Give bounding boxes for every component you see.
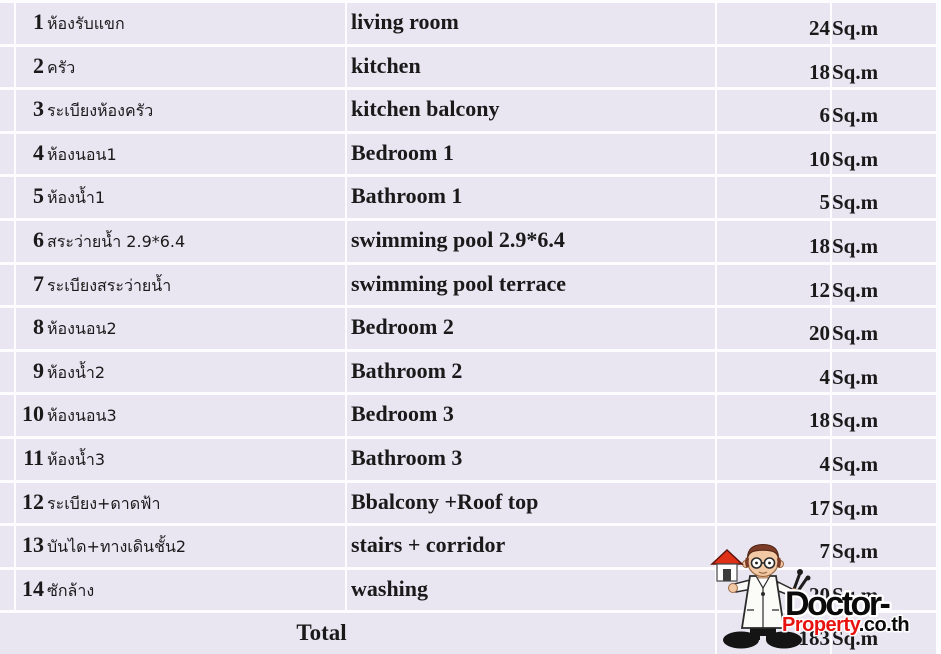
room-english-cell: Bbalcony +Roof top — [347, 483, 715, 524]
area-value: 18 — [809, 60, 830, 84]
area-unit-cell: Sq.m — [832, 221, 936, 262]
room-thai-cell: 13บันได+ทางเดินชั้น2 — [16, 526, 345, 567]
row-left-margin-cell — [0, 3, 14, 44]
room-english-cell: Bathroom 1 — [347, 177, 715, 218]
row-number: 12 — [16, 490, 44, 513]
area-value: 12 — [809, 278, 830, 302]
room-thai-cell: 9ห้องน้ำ2 — [16, 352, 345, 393]
room-name-thai: ระเบียงห้องครัว — [47, 101, 153, 120]
area-unit-label: Sq.m — [832, 16, 878, 40]
area-value-cell: 12 — [717, 265, 830, 306]
area-value: 24 — [809, 16, 830, 40]
area-value-cell: 6 — [717, 90, 830, 131]
room-english-cell: Bathroom 2 — [347, 352, 715, 393]
table-row: 10ห้องนอน3 Bedroom 3 18 Sq.m — [0, 395, 941, 436]
area-unit-label: Sq.m — [832, 147, 878, 171]
area-value-cell: 18 — [717, 221, 830, 262]
row-number: 8 — [16, 315, 44, 338]
room-name-english: living room — [351, 9, 459, 34]
area-unit-label: Sq.m — [832, 408, 878, 432]
total-row: Total 183 Sq.m — [0, 613, 941, 654]
area-unit-cell: Sq.m — [832, 395, 936, 436]
area-value: 17 — [809, 496, 830, 520]
area-value: 18 — [809, 408, 830, 432]
room-english-cell: stairs + corridor — [347, 526, 715, 567]
room-name-english: swimming pool terrace — [351, 271, 566, 296]
area-unit-label: Sq.m — [832, 539, 878, 563]
room-name-thai: ระเบียงสระว่ายน้ำ — [47, 276, 171, 295]
table-row: 11ห้องน้ำ3 Bathroom 3 4 Sq.m — [0, 439, 941, 480]
area-value-cell: 18 — [717, 47, 830, 88]
area-value-cell: 10 — [717, 134, 830, 175]
area-unit-label: Sq.m — [832, 365, 878, 389]
area-unit-label: Sq.m — [832, 321, 878, 345]
room-thai-cell: 6สระว่ายน้ำ 2.9*6.4 — [16, 221, 345, 262]
area-unit-cell: Sq.m — [832, 483, 936, 524]
row-left-margin-cell — [0, 221, 14, 262]
row-left-margin-cell — [0, 47, 14, 88]
row-left-margin-cell — [0, 134, 14, 175]
area-value: 10 — [809, 147, 830, 171]
total-area-value: 183 — [799, 626, 831, 650]
total-area-unit: Sq.m — [832, 626, 878, 650]
room-thai-cell: 7ระเบียงสระว่ายน้ำ — [16, 265, 345, 306]
area-unit-label: Sq.m — [832, 583, 878, 607]
room-area-sheet: 1ห้องรับแขก living room 24 Sq.m 2ครัว ki… — [0, 0, 941, 654]
area-unit-cell: Sq.m — [832, 526, 936, 567]
table-row: 13บันได+ทางเดินชั้น2 stairs + corridor 7… — [0, 526, 941, 567]
room-name-thai: บันได+ทางเดินชั้น2 — [47, 537, 186, 556]
room-name-thai: ห้องน้ำ2 — [47, 363, 105, 382]
row-number: 5 — [16, 184, 44, 207]
row-left-margin-cell — [0, 352, 14, 393]
table-row: 12ระเบียง+ดาดฟ้า Bbalcony +Roof top 17 S… — [0, 483, 941, 524]
row-number: 11 — [16, 446, 44, 469]
area-unit-cell: Sq.m — [832, 308, 936, 349]
total-label: Total — [296, 620, 346, 645]
room-name-thai: ห้องน้ำ1 — [47, 188, 105, 207]
room-name-english: Bedroom 2 — [351, 314, 454, 339]
row-number: 10 — [16, 402, 44, 425]
room-name-english: Bedroom 3 — [351, 401, 454, 426]
row-number: 6 — [16, 228, 44, 251]
row-number: 14 — [16, 577, 44, 600]
row-number: 9 — [16, 359, 44, 382]
area-value: 18 — [809, 234, 830, 258]
row-left-margin-cell — [0, 526, 14, 567]
room-name-thai: ครัว — [47, 58, 75, 77]
room-thai-cell: 5ห้องน้ำ1 — [16, 177, 345, 218]
area-unit-cell: Sq.m — [832, 90, 936, 131]
room-name-thai: ซักล้าง — [47, 581, 94, 600]
row-left-margin-cell — [0, 90, 14, 131]
area-value-cell: 4 — [717, 439, 830, 480]
room-name-english: Bbalcony +Roof top — [351, 489, 538, 514]
table-row: 7ระเบียงสระว่ายน้ำ swimming pool terrace… — [0, 265, 941, 306]
area-value: 4 — [820, 452, 831, 476]
room-thai-cell: 10ห้องนอน3 — [16, 395, 345, 436]
room-english-cell: Bathroom 3 — [347, 439, 715, 480]
area-unit-label: Sq.m — [832, 190, 878, 214]
area-value: 6 — [820, 103, 831, 127]
room-name-thai: สระว่ายน้ำ 2.9*6.4 — [47, 232, 185, 251]
area-value-cell: 7 — [717, 526, 830, 567]
area-unit-label: Sq.m — [832, 452, 878, 476]
room-english-cell: kitchen — [347, 47, 715, 88]
row-number: 7 — [16, 272, 44, 295]
area-unit-cell: Sq.m — [832, 352, 936, 393]
room-english-cell: swimming pool 2.9*6.4 — [347, 221, 715, 262]
room-thai-cell: 3ระเบียงห้องครัว — [16, 90, 345, 131]
room-english-cell: living room — [347, 3, 715, 44]
room-thai-cell: 2ครัว — [16, 47, 345, 88]
area-value-cell: 17 — [717, 483, 830, 524]
table-row: 8ห้องนอน2 Bedroom 2 20 Sq.m — [0, 308, 941, 349]
area-value-cell: 4 — [717, 352, 830, 393]
area-unit-cell: Sq.m — [832, 265, 936, 306]
table-row: 5ห้องน้ำ1 Bathroom 1 5 Sq.m — [0, 177, 941, 218]
area-value: 20 — [809, 321, 830, 345]
room-name-english: stairs + corridor — [351, 532, 505, 557]
room-english-cell: kitchen balcony — [347, 90, 715, 131]
row-left-margin-cell — [0, 570, 14, 611]
area-unit-cell: Sq.m — [832, 439, 936, 480]
room-name-english: kitchen balcony — [351, 96, 500, 121]
area-value: 7 — [820, 539, 831, 563]
row-number: 13 — [16, 533, 44, 556]
room-name-english: Bedroom 1 — [351, 140, 454, 165]
area-value: 5 — [820, 190, 831, 214]
room-thai-cell: 8ห้องนอน2 — [16, 308, 345, 349]
room-english-cell: Bedroom 1 — [347, 134, 715, 175]
room-name-thai: ห้องนอน2 — [47, 319, 117, 338]
room-thai-cell: 1ห้องรับแขก — [16, 3, 345, 44]
area-value: 4 — [820, 365, 831, 389]
area-unit-label: Sq.m — [832, 496, 878, 520]
area-unit-label: Sq.m — [832, 234, 878, 258]
room-thai-cell: 14ซักล้าง — [16, 570, 345, 611]
table-row: 1ห้องรับแขก living room 24 Sq.m — [0, 3, 941, 44]
area-value-cell: 20 — [717, 570, 830, 611]
area-value-cell: 20 — [717, 308, 830, 349]
room-name-english: Bathroom 2 — [351, 358, 462, 383]
table-rows-container: 1ห้องรับแขก living room 24 Sq.m 2ครัว ki… — [0, 3, 941, 610]
room-name-english: Bathroom 1 — [351, 183, 462, 208]
room-thai-cell: 11ห้องน้ำ3 — [16, 439, 345, 480]
area-unit-label: Sq.m — [832, 60, 878, 84]
room-name-english: washing — [351, 576, 428, 601]
room-name-thai: ห้องนอน1 — [47, 145, 117, 164]
area-unit-label: Sq.m — [832, 278, 878, 302]
room-name-thai: ห้องน้ำ3 — [47, 450, 105, 469]
room-thai-cell: 12ระเบียง+ดาดฟ้า — [16, 483, 345, 524]
area-value-cell: 24 — [717, 3, 830, 44]
row-left-margin-cell — [0, 308, 14, 349]
area-value: 20 — [809, 583, 830, 607]
row-left-margin-cell — [0, 265, 14, 306]
row-left-margin-cell — [0, 395, 14, 436]
area-unit-cell: Sq.m — [832, 134, 936, 175]
room-english-cell: Bedroom 3 — [347, 395, 715, 436]
area-unit-cell: Sq.m — [832, 3, 936, 44]
room-name-thai: ห้องรับแขก — [47, 14, 125, 33]
table-row: 2ครัว kitchen 18 Sq.m — [0, 47, 941, 88]
room-english-cell: washing — [347, 570, 715, 611]
row-left-margin-cell — [0, 483, 14, 524]
total-value-cell: 183 — [717, 613, 830, 654]
area-value-cell: 5 — [717, 177, 830, 218]
row-left-margin-cell — [0, 177, 14, 218]
total-label-cell: Total — [0, 613, 715, 654]
row-number: 1 — [16, 10, 44, 33]
area-unit-cell: Sq.m — [832, 177, 936, 218]
table-row: 4ห้องนอน1 Bedroom 1 10 Sq.m — [0, 134, 941, 175]
row-number: 3 — [16, 97, 44, 120]
room-name-thai: ระเบียง+ดาดฟ้า — [47, 494, 160, 513]
table-row: 9ห้องน้ำ2 Bathroom 2 4 Sq.m — [0, 352, 941, 393]
room-english-cell: Bedroom 2 — [347, 308, 715, 349]
room-name-english: Bathroom 3 — [351, 445, 462, 470]
room-name-thai: ห้องนอน3 — [47, 406, 117, 425]
room-name-english: kitchen — [351, 53, 421, 78]
total-unit-cell: Sq.m — [832, 613, 936, 654]
table-row: 6สระว่ายน้ำ 2.9*6.4 swimming pool 2.9*6.… — [0, 221, 941, 262]
row-left-margin-cell — [0, 439, 14, 480]
table-row: 3ระเบียงห้องครัว kitchen balcony 6 Sq.m — [0, 90, 941, 131]
table-row: 14ซักล้าง washing 20 Sq.m — [0, 570, 941, 611]
room-english-cell: swimming pool terrace — [347, 265, 715, 306]
row-number: 2 — [16, 54, 44, 77]
area-value-cell: 18 — [717, 395, 830, 436]
area-unit-label: Sq.m — [832, 103, 878, 127]
room-thai-cell: 4ห้องนอน1 — [16, 134, 345, 175]
row-number: 4 — [16, 141, 44, 164]
room-name-english: swimming pool 2.9*6.4 — [351, 227, 565, 252]
area-unit-cell: Sq.m — [832, 570, 936, 611]
area-unit-cell: Sq.m — [832, 47, 936, 88]
